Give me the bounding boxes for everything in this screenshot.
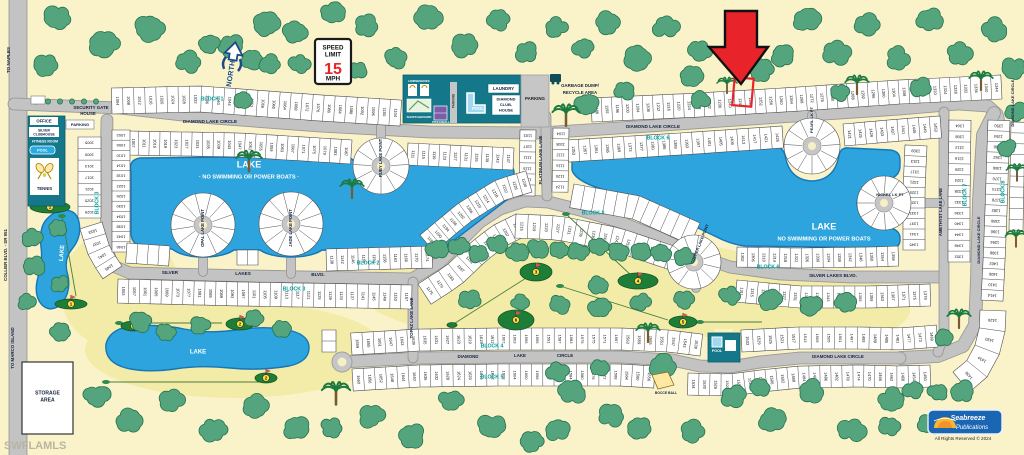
svg-text:PARKING: PARKING [71, 122, 89, 127]
svg-text:POOL: POOL [472, 106, 484, 111]
svg-text:BLOCK 5: BLOCK 5 [481, 374, 504, 380]
svg-text:1133: 1133 [339, 291, 344, 300]
svg-text:1398: 1398 [989, 251, 999, 256]
svg-text:1595: 1595 [535, 335, 540, 345]
svg-text:1005: 1005 [84, 141, 94, 146]
svg-text:1026: 1026 [116, 194, 126, 199]
svg-text:1019: 1019 [163, 139, 168, 149]
svg-text:CLUBHOUSE: CLUBHOUSE [33, 132, 55, 136]
svg-text:1414: 1414 [987, 293, 997, 298]
svg-text:1517: 1517 [791, 334, 796, 344]
svg-text:1501: 1501 [838, 334, 843, 344]
svg-text:1308: 1308 [902, 87, 907, 97]
svg-text:1363: 1363 [880, 292, 885, 302]
svg-text:1354: 1354 [880, 252, 885, 262]
svg-text:1309: 1309 [910, 148, 920, 153]
svg-text:1073: 1073 [175, 288, 180, 298]
svg-text:1583: 1583 [569, 335, 574, 345]
svg-text:1310: 1310 [762, 253, 767, 263]
svg-text:1124: 1124 [555, 185, 564, 190]
svg-text:1353: 1353 [571, 146, 577, 156]
svg-text:1575: 1575 [591, 335, 596, 345]
svg-text:BLVD.: BLVD. [311, 272, 324, 277]
svg-text:1326: 1326 [805, 253, 810, 263]
svg-text:1044: 1044 [227, 97, 233, 107]
svg-text:BLOCK 2: BLOCK 2 [357, 260, 380, 266]
svg-text:1027: 1027 [184, 140, 189, 150]
svg-text:1466: 1466 [878, 372, 883, 382]
svg-text:1644: 1644 [401, 372, 406, 382]
svg-text:SPEED: SPEED [323, 45, 345, 52]
svg-text:1652: 1652 [378, 374, 383, 384]
svg-text:1021: 1021 [84, 187, 94, 192]
svg-text:1334: 1334 [826, 253, 831, 263]
svg-text:1336: 1336 [974, 84, 979, 94]
svg-text:1061: 1061 [143, 287, 148, 297]
svg-text:1141: 1141 [361, 292, 366, 301]
svg-text:LAKE: LAKE [812, 221, 837, 231]
svg-text:LAUNDRY: LAUNDRY [493, 86, 514, 91]
svg-text:1359: 1359 [869, 292, 874, 302]
svg-text:1433: 1433 [879, 127, 885, 137]
svg-text:1288: 1288 [850, 91, 856, 101]
svg-text:1381: 1381 [650, 141, 656, 151]
svg-text:1089: 1089 [219, 289, 224, 299]
svg-text:1377: 1377 [639, 142, 645, 152]
svg-text:1252: 1252 [758, 97, 763, 107]
svg-text:SILVER LAKES BLVD.: SILVER LAKES BLVD. [809, 273, 857, 278]
svg-text:1417: 1417 [752, 134, 758, 144]
svg-text:1324: 1324 [943, 85, 948, 95]
svg-text:1153: 1153 [393, 292, 398, 301]
svg-text:DIAMOND: DIAMOND [458, 354, 479, 359]
svg-text:OFFICE: OFFICE [36, 119, 52, 124]
svg-text:1441: 1441 [901, 125, 907, 135]
svg-text:NICKEL LK PT: NICKEL LK PT [876, 192, 904, 197]
svg-text:RECYCLE AREA: RECYCLE AREA [563, 90, 598, 95]
svg-text:1449: 1449 [922, 124, 928, 134]
svg-text:1104: 1104 [556, 131, 565, 136]
svg-text:1069: 1069 [165, 288, 170, 298]
svg-text:1437: 1437 [890, 126, 896, 136]
svg-text:1330: 1330 [815, 253, 820, 263]
svg-text:1120: 1120 [555, 174, 564, 179]
svg-text:RUBY LAKE POINT: RUBY LAKE POINT [378, 138, 383, 177]
svg-text:1350: 1350 [993, 123, 1003, 128]
svg-text:1075: 1075 [312, 145, 318, 155]
svg-text:1559: 1559 [637, 335, 642, 345]
svg-text:1509: 1509 [815, 334, 820, 344]
svg-text:1627: 1627 [445, 335, 450, 345]
svg-text:1308: 1308 [955, 134, 965, 139]
svg-text:RESTROOMS: RESTROOMS [715, 329, 733, 333]
svg-text:1453: 1453 [933, 123, 939, 133]
svg-text:1628: 1628 [445, 371, 450, 381]
svg-text:1338: 1338 [837, 253, 842, 263]
svg-text:1355: 1355 [858, 293, 863, 303]
svg-text:1571: 1571 [603, 335, 608, 345]
svg-text:PEARL LK PT: PEARL LK PT [809, 106, 814, 133]
svg-text:1563: 1563 [625, 335, 630, 345]
svg-text:1596: 1596 [535, 371, 540, 381]
svg-text:1406: 1406 [988, 272, 998, 277]
svg-text:LIMIT: LIMIT [325, 52, 341, 59]
svg-text:1302: 1302 [740, 253, 745, 263]
svg-text:1064: 1064 [282, 101, 288, 111]
svg-text:1580: 1580 [580, 371, 585, 381]
svg-text:1389: 1389 [673, 140, 679, 150]
svg-text:1018: 1018 [116, 174, 126, 179]
svg-text:1394: 1394 [989, 240, 999, 245]
svg-text:1332: 1332 [963, 84, 968, 94]
svg-text:AMETHYST LAKE LANE: AMETHYST LAKE LANE [938, 188, 943, 236]
svg-text:1344: 1344 [954, 233, 964, 238]
svg-text:1028: 1028 [182, 95, 187, 105]
svg-text:1375: 1375 [912, 291, 917, 301]
svg-text:1604: 1604 [513, 371, 518, 381]
svg-text:1357: 1357 [582, 145, 588, 155]
svg-text:1204: 1204 [635, 103, 640, 113]
svg-text:1129: 1129 [328, 291, 333, 300]
svg-text:1426: 1426 [987, 318, 997, 323]
svg-text:CIRCLE: CIRCLE [557, 353, 573, 358]
svg-text:1146: 1146 [351, 255, 356, 265]
svg-text:· NO SWIMMING OR POWER BOATS ·: · NO SWIMMING OR POWER BOATS · [199, 174, 299, 180]
svg-text:1020: 1020 [159, 95, 164, 105]
svg-text:1458: 1458 [900, 372, 905, 382]
svg-text:1647: 1647 [388, 337, 393, 347]
svg-text:TO NAPLES: TO NAPLES [6, 47, 11, 73]
svg-text:DIAMOND LAKE CIRCLE: DIAMOND LAKE CIRCLE [1010, 79, 1015, 126]
svg-text:1425: 1425 [858, 129, 864, 139]
svg-text:POOL: POOL [37, 148, 48, 152]
svg-text:BLOCK 3: BLOCK 3 [582, 210, 605, 216]
svg-text:1336: 1336 [954, 211, 964, 216]
svg-text:1397: 1397 [696, 138, 702, 148]
svg-text:1300: 1300 [881, 88, 887, 98]
svg-text:1039: 1039 [216, 140, 221, 150]
svg-text:1139: 1139 [485, 153, 490, 163]
svg-text:CLUB-: CLUB- [500, 102, 513, 107]
svg-text:1473: 1473 [917, 333, 923, 343]
svg-text:1379: 1379 [923, 291, 928, 301]
svg-text:1405: 1405 [718, 137, 724, 147]
svg-text:1369: 1369 [616, 143, 622, 153]
svg-text:BLOCK 8: BLOCK 8 [1000, 181, 1006, 204]
svg-text:1346: 1346 [858, 253, 863, 263]
svg-text:1402: 1402 [989, 261, 999, 266]
svg-text:1409: 1409 [729, 136, 735, 146]
svg-text:1105: 1105 [263, 290, 268, 299]
svg-text:1600: 1600 [524, 371, 529, 381]
svg-text:1260: 1260 [779, 95, 784, 105]
svg-text:1032: 1032 [193, 95, 198, 105]
svg-text:1216: 1216 [666, 102, 671, 112]
svg-text:JADE LAKE POINT: JADE LAKE POINT [288, 209, 293, 247]
svg-text:1076: 1076 [315, 103, 321, 113]
svg-text:1410: 1410 [987, 282, 997, 287]
svg-text:1096: 1096 [371, 107, 377, 117]
svg-text:1200: 1200 [625, 104, 630, 114]
svg-text:1345: 1345 [909, 243, 919, 248]
svg-text:1529: 1529 [756, 335, 761, 345]
svg-text:1591: 1591 [547, 335, 552, 345]
svg-text:1358: 1358 [891, 252, 896, 262]
svg-text:1486: 1486 [823, 372, 828, 382]
svg-text:1365: 1365 [605, 144, 611, 154]
svg-text:1081: 1081 [197, 289, 202, 299]
svg-text:1513: 1513 [803, 334, 808, 344]
svg-text:1047: 1047 [237, 141, 242, 151]
svg-text:BLOCK 6: BLOCK 6 [757, 264, 780, 270]
svg-text:1320: 1320 [933, 86, 938, 96]
svg-text:1314: 1314 [772, 253, 777, 263]
svg-text:Seabreeze: Seabreeze [951, 415, 986, 422]
svg-text:1219: 1219 [532, 222, 537, 232]
svg-text:1623: 1623 [456, 335, 461, 345]
svg-text:1445: 1445 [912, 124, 918, 134]
svg-text:1104: 1104 [393, 108, 399, 118]
svg-text:1450: 1450 [923, 372, 928, 382]
svg-text:1085: 1085 [208, 289, 213, 299]
svg-text:BLOCK 6: BLOCK 6 [647, 135, 670, 141]
svg-text:1390: 1390 [990, 229, 1000, 234]
svg-text:HORSESHOES: HORSESHOES [408, 79, 429, 83]
svg-text:1478: 1478 [845, 372, 850, 382]
svg-text:1107: 1107 [523, 144, 532, 149]
svg-text:1223: 1223 [544, 223, 549, 233]
svg-text:1640: 1640 [412, 372, 417, 382]
svg-text:OPAL LAKE POINT: OPAL LAKE POINT [200, 209, 205, 247]
svg-text:1386: 1386 [990, 219, 1000, 224]
svg-text:BOCCE BALL: BOCCE BALL [655, 391, 677, 395]
svg-text:LAKES: LAKES [235, 271, 251, 276]
svg-text:1101: 1101 [252, 290, 257, 299]
svg-text:DIAMOND LAKE CIRCLE: DIAMOND LAKE CIRCLE [183, 119, 237, 124]
svg-text:1320: 1320 [954, 167, 964, 172]
svg-text:1072: 1072 [304, 102, 310, 112]
svg-text:1093: 1093 [230, 289, 235, 299]
svg-text:1477: 1477 [906, 334, 912, 344]
svg-text:FITNESS ROOM: FITNESS ROOM [32, 139, 58, 143]
svg-text:1007: 1007 [131, 139, 136, 149]
svg-text:POOL: POOL [712, 349, 723, 353]
svg-text:1474: 1474 [856, 372, 861, 382]
svg-text:GARBAGE DUMP/: GARBAGE DUMP/ [561, 83, 600, 88]
svg-text:1317: 1317 [909, 169, 919, 174]
svg-text:1131: 1131 [463, 152, 468, 162]
svg-text:1619: 1619 [468, 335, 473, 345]
svg-text:1631: 1631 [434, 335, 439, 345]
svg-text:1030: 1030 [116, 204, 126, 209]
svg-text:1043: 1043 [227, 140, 232, 150]
svg-text:1361: 1361 [594, 145, 600, 155]
svg-text:1304: 1304 [955, 123, 965, 128]
svg-text:1599: 1599 [524, 335, 529, 345]
svg-text:1470: 1470 [867, 372, 872, 382]
svg-text:HOUSE: HOUSE [499, 108, 514, 113]
svg-text:1137: 1137 [350, 292, 355, 301]
svg-text:1620: 1620 [468, 371, 473, 381]
svg-text:1088: 1088 [349, 105, 355, 115]
svg-text:1429: 1429 [868, 128, 874, 138]
svg-text:PICKLEBALL: PICKLEBALL [432, 120, 450, 124]
svg-text:1079: 1079 [322, 146, 328, 156]
svg-text:SWFLAMLS: SWFLAMLS [4, 440, 66, 452]
svg-text:1489: 1489 [873, 334, 878, 344]
svg-text:1560: 1560 [635, 371, 640, 381]
svg-text:1017: 1017 [84, 175, 94, 180]
svg-text:1060: 1060 [271, 100, 277, 110]
svg-text:1352: 1352 [954, 254, 964, 259]
svg-text:1125: 1125 [317, 291, 322, 300]
svg-text:1343: 1343 [826, 293, 831, 303]
svg-text:1149: 1149 [382, 292, 387, 301]
svg-text:1051: 1051 [248, 141, 254, 151]
svg-text:1382: 1382 [991, 208, 1001, 213]
svg-text:1333: 1333 [909, 211, 919, 216]
svg-text:1525: 1525 [768, 335, 773, 345]
svg-text:1264: 1264 [789, 95, 794, 105]
svg-text:1425: 1425 [775, 133, 781, 143]
svg-text:NO SWIMMING OR POWER BOATS: NO SWIMMING OR POWER BOATS [777, 236, 870, 242]
svg-text:1651: 1651 [377, 338, 382, 348]
svg-text:PARKING: PARKING [525, 96, 546, 101]
svg-text:1568: 1568 [614, 371, 619, 381]
svg-text:BLOCK 3: BLOCK 3 [283, 286, 306, 292]
svg-text:1469: 1469 [929, 332, 935, 342]
svg-text:1077: 1077 [186, 288, 191, 298]
svg-text:1533: 1533 [745, 336, 750, 346]
svg-text:1306: 1306 [751, 253, 756, 263]
svg-text:1097: 1097 [241, 290, 246, 300]
svg-text:1116: 1116 [555, 163, 564, 168]
svg-text:PLATINUM LAKE LANE: PLATINUM LAKE LANE [538, 136, 543, 185]
svg-text:1112: 1112 [556, 153, 565, 158]
svg-text:1142: 1142 [340, 255, 345, 265]
svg-text:1083: 1083 [333, 146, 339, 156]
svg-text:1196: 1196 [615, 104, 620, 114]
svg-text:1587: 1587 [558, 335, 563, 345]
svg-text:1321: 1321 [909, 180, 919, 185]
svg-text:1328: 1328 [953, 85, 958, 95]
svg-text:1009: 1009 [84, 152, 94, 157]
svg-text:1135: 1135 [474, 153, 479, 163]
svg-text:MPH: MPH [326, 76, 341, 83]
svg-text:1236: 1236 [717, 99, 722, 109]
svg-text:1056: 1056 [260, 99, 266, 109]
svg-text:1401: 1401 [707, 137, 713, 147]
svg-text:1292: 1292 [860, 90, 866, 100]
svg-text:1145: 1145 [372, 292, 377, 301]
svg-text:All Rights Reserved © 2024: All Rights Reserved © 2024 [935, 435, 992, 441]
svg-text:1313: 1313 [910, 159, 920, 164]
svg-text:1068: 1068 [293, 102, 299, 112]
svg-text:BLOCK 3: BLOCK 3 [94, 192, 100, 215]
svg-text:1526: 1526 [713, 380, 718, 390]
svg-text:1502: 1502 [780, 374, 786, 384]
svg-text:1367: 1367 [891, 292, 896, 302]
svg-text:1494: 1494 [802, 372, 807, 382]
svg-text:1015: 1015 [152, 139, 157, 149]
svg-text:1092: 1092 [360, 106, 366, 116]
svg-text:1643: 1643 [400, 336, 405, 346]
svg-text:1481: 1481 [895, 334, 900, 344]
svg-text:STORAGE: STORAGE [35, 390, 60, 396]
svg-text:1100: 1100 [382, 108, 388, 118]
svg-text:1530: 1530 [702, 380, 707, 390]
svg-text:1162: 1162 [393, 254, 398, 264]
svg-text:1268: 1268 [799, 94, 805, 104]
svg-text:BLOCK 7: BLOCK 7 [962, 184, 968, 207]
svg-text:1462: 1462 [889, 372, 894, 382]
svg-text:1127: 1127 [453, 152, 458, 162]
svg-text:1635: 1635 [423, 335, 428, 345]
svg-text:SILVER: SILVER [162, 270, 179, 275]
svg-text:1071: 1071 [301, 144, 307, 154]
svg-text:1014: 1014 [116, 164, 126, 169]
svg-text:TO MARCO ISLAND: TO MARCO ISLAND [10, 327, 15, 368]
svg-text:1421: 1421 [763, 133, 769, 143]
svg-text:1534: 1534 [691, 380, 696, 390]
svg-text:1087: 1087 [343, 147, 349, 157]
svg-text:1038: 1038 [116, 225, 126, 230]
svg-text:1024: 1024 [171, 95, 176, 105]
svg-text:1042: 1042 [116, 235, 126, 240]
svg-text:1341: 1341 [909, 232, 919, 237]
svg-text:1567: 1567 [614, 335, 619, 345]
svg-text:SECURITY GATE: SECURITY GATE [73, 105, 108, 110]
svg-text:1276: 1276 [819, 93, 825, 103]
svg-text:1111: 1111 [523, 155, 532, 160]
svg-text:LAKE: LAKE [514, 353, 526, 358]
svg-text:DIAMOND LAKE CIRCLE: DIAMOND LAKE CIRCLE [626, 124, 680, 129]
svg-text:1108: 1108 [556, 142, 565, 147]
svg-text:HOUSE: HOUSE [80, 111, 96, 116]
svg-text:1046: 1046 [116, 245, 126, 250]
svg-text:1111: 1111 [410, 150, 415, 159]
svg-text:1315: 1315 [749, 288, 755, 298]
svg-text:1325: 1325 [909, 190, 919, 195]
svg-text:1010: 1010 [116, 153, 126, 158]
svg-text:1147: 1147 [506, 154, 511, 164]
svg-text:1059: 1059 [269, 142, 275, 152]
svg-text:1579: 1579 [580, 335, 585, 345]
svg-text:1632: 1632 [434, 371, 439, 381]
svg-text:1371: 1371 [901, 291, 906, 301]
svg-text:1322: 1322 [794, 253, 799, 263]
svg-text:1454: 1454 [912, 372, 917, 382]
svg-text:TENNIS: TENNIS [37, 186, 53, 191]
svg-text:1659: 1659 [355, 339, 360, 349]
svg-text:1366: 1366 [992, 166, 1002, 171]
svg-text:1031: 1031 [195, 140, 200, 150]
svg-text:1212: 1212 [656, 102, 661, 112]
svg-text:PARKING: PARKING [451, 93, 455, 108]
svg-text:1063: 1063 [280, 143, 286, 153]
svg-text:1109: 1109 [274, 290, 279, 299]
svg-text:1385: 1385 [662, 140, 668, 150]
svg-text:1006: 1006 [116, 143, 126, 148]
svg-text:1170: 1170 [414, 253, 419, 263]
svg-text:1505: 1505 [826, 334, 831, 344]
svg-text:1012: 1012 [137, 96, 142, 106]
svg-text:1220: 1220 [676, 101, 681, 111]
svg-text:1348: 1348 [954, 244, 964, 249]
svg-text:1340: 1340 [954, 222, 964, 227]
svg-text:DIAMOND LAKE CIRCLE: DIAMOND LAKE CIRCLE [812, 354, 864, 359]
svg-text:DIAMOND LAKE CIRCLE: DIAMOND LAKE CIRCLE [976, 216, 981, 263]
